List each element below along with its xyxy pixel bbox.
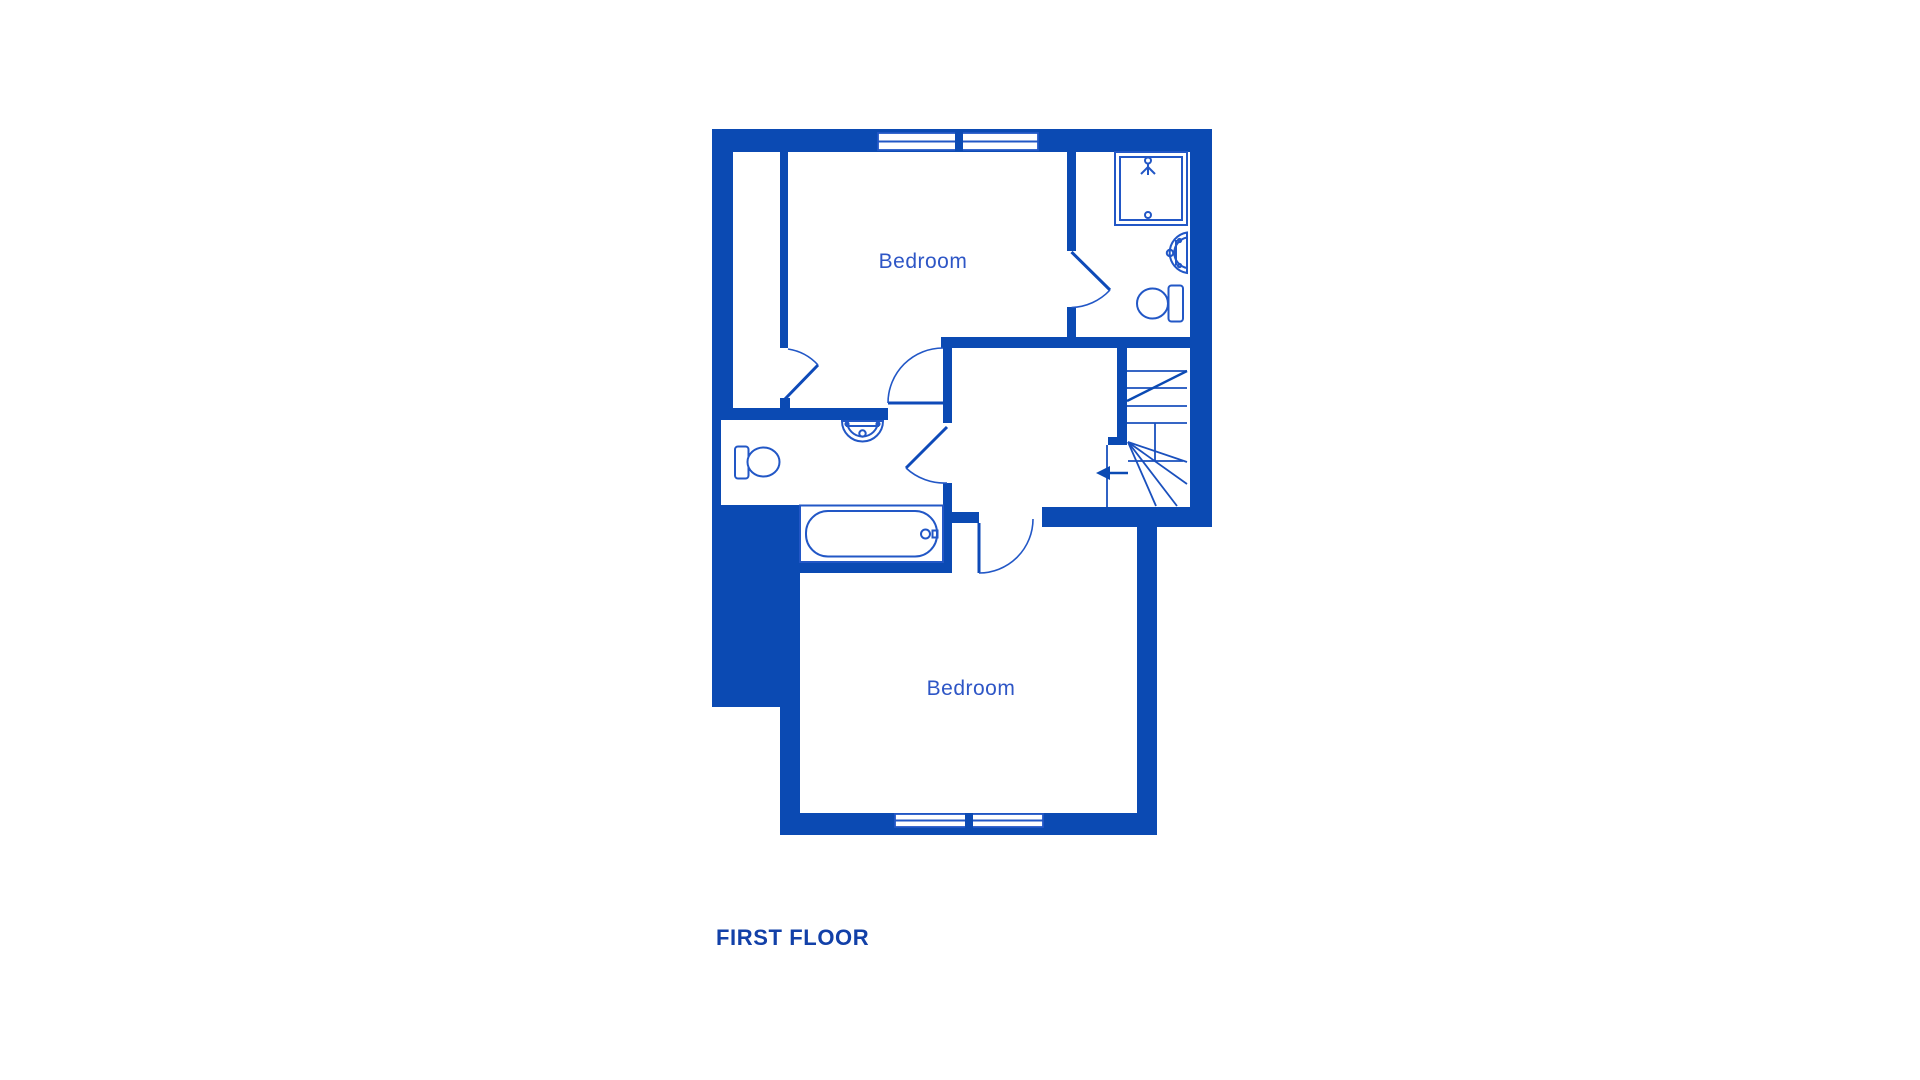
wall-segment	[1067, 307, 1076, 348]
wall-segment	[943, 483, 952, 573]
bathtub-icon	[800, 506, 943, 563]
wall-segment	[780, 707, 800, 813]
wall-segment	[712, 420, 721, 505]
door-leaf-closet	[785, 365, 818, 399]
wall-segment	[1190, 129, 1212, 527]
window-bottom-mullion	[965, 813, 973, 835]
door-arc-bedroom-bottom	[979, 519, 1033, 573]
wall-segment	[1042, 507, 1212, 527]
room-closet	[733, 152, 780, 408]
wall-segment	[941, 337, 1190, 348]
floor-title: FIRST FLOOR	[716, 925, 869, 951]
wall-segment	[800, 562, 952, 573]
wall-segment	[1067, 152, 1076, 251]
floor-plan-page: Bedroom Bedroom FIRST FLOOR	[0, 0, 1920, 1080]
floor-plan-drawing: Bedroom Bedroom	[0, 0, 1920, 1080]
wall-segment	[943, 348, 952, 423]
door-arc-closet	[788, 349, 818, 365]
wall-segment	[1117, 348, 1127, 437]
room-label-bedroom-top: Bedroom	[879, 250, 968, 273]
wall-segment	[780, 151, 788, 348]
room-bathroom	[721, 420, 943, 505]
wall-segment	[1137, 527, 1157, 835]
window-top-mullion	[955, 129, 963, 152]
wall-solid-block	[712, 505, 800, 707]
room-label-bedroom-bottom: Bedroom	[927, 677, 1016, 700]
room-ensuite	[1076, 152, 1190, 337]
room-bedroom-top	[788, 152, 1067, 337]
room-stairs	[1127, 348, 1187, 507]
wall-segment	[712, 129, 733, 420]
door-arc-bathroom	[888, 348, 943, 403]
wall-segment	[712, 408, 888, 420]
wall-segment	[952, 512, 979, 523]
room-landing	[952, 348, 1117, 507]
